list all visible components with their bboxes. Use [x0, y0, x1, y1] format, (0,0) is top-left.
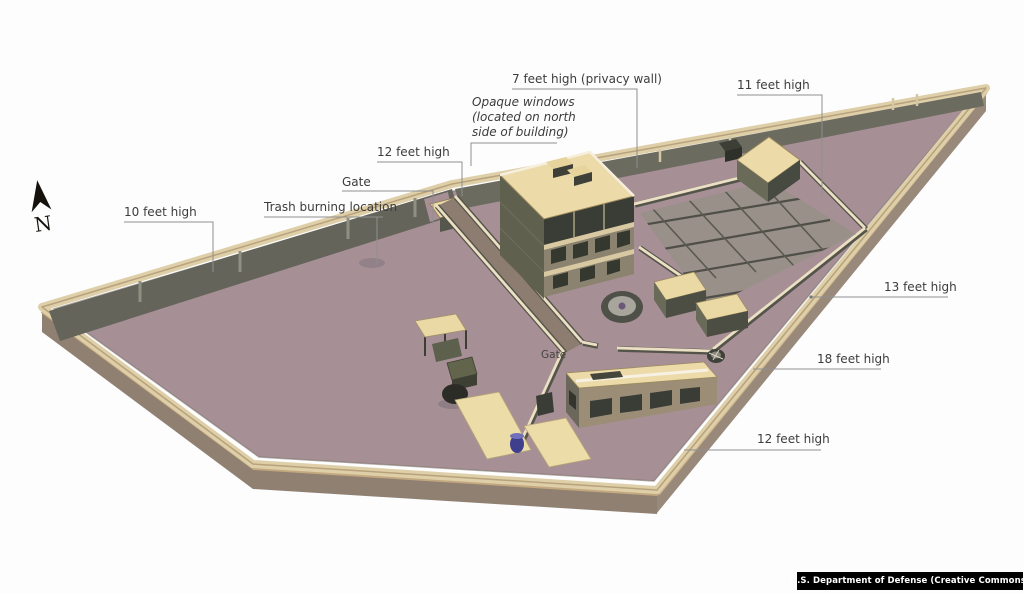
small-dish [707, 349, 725, 363]
label-height-13: 13 feet high [884, 280, 957, 294]
label-trash: Trash burning location [263, 200, 397, 214]
label-height-11: 11 feet high [737, 78, 810, 92]
compass-north-label: N [33, 211, 54, 237]
compound-diagram-page: N 7 feet high (privacy wall) Opaque wind… [0, 0, 1024, 593]
label-height-10: 10 feet high [124, 205, 197, 219]
label-privacy-wall: 7 feet high (privacy wall) [512, 72, 662, 86]
attribution-text: U.S. Department of Defense (Creative Com… [790, 576, 1024, 586]
yard-doorway [536, 392, 554, 416]
compound-diagram: N 7 feet high (privacy wall) Opaque wind… [0, 0, 1024, 593]
trash-burning-spot [359, 258, 385, 268]
blue-barrel [510, 433, 524, 453]
label-opaque-windows-2: (located on north [472, 110, 576, 124]
compass: N [27, 179, 55, 237]
label-height-12-nw: 12 feet high [377, 145, 450, 159]
label-height-12-s: 12 feet high [757, 432, 830, 446]
label-gate-inner: Gate [541, 349, 566, 361]
label-opaque-windows-3: side of building) [472, 125, 569, 139]
callout-opaque-windows: Opaque windows (located on north side of… [471, 95, 576, 166]
attribution-bar: U.S. Department of Defense (Creative Com… [797, 572, 1023, 590]
label-opaque-windows-1: Opaque windows [472, 95, 575, 109]
satellite-dish [601, 291, 643, 323]
north-arrow-icon [27, 179, 51, 212]
label-gate-north: Gate [342, 175, 371, 189]
label-height-18: 18 feet high [817, 352, 890, 366]
